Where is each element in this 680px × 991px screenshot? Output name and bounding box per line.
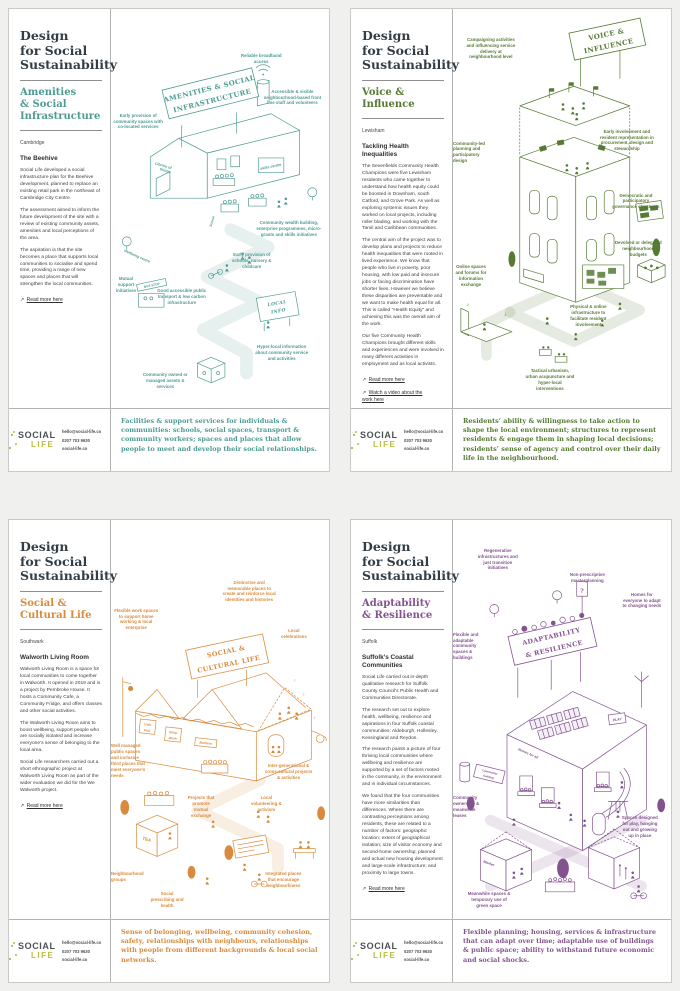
location-label: Southwark <box>20 639 102 645</box>
svg-text:♪: ♪ <box>467 303 469 308</box>
read-more-link[interactable]: ↗ Watch a video about the work here <box>362 390 432 404</box>
poster-subtitle: Amenities & Social Infrastructure <box>20 87 102 124</box>
body-paragraph: The aspiration is that the site becomes … <box>20 248 102 290</box>
illustration-canvas: ♪ ♪ VOICE & INFLUENCE <box>453 9 671 408</box>
illustration-callout: Integrated places that encourage neighbo… <box>261 871 305 888</box>
roof-sign: ADAPTABILITY & RESILIENCE <box>506 611 596 665</box>
roof-sign: AMENITIES & SOCIAL INFRASTRUCTURE <box>160 68 259 120</box>
footer-brand: SOCIAL LIFE hello@social-life.co 0207 70… <box>351 409 453 471</box>
illustration-callout: Spaces designed for play, hanging out an… <box>621 815 659 838</box>
poster-voice-influence: Design for Social Sustainability Voice &… <box>350 8 672 472</box>
external-link-icon: ↗ <box>362 377 368 383</box>
poster-footer: SOCIAL LIFE hello@social-life.co 0207 70… <box>351 919 671 982</box>
location-label: Suffolk <box>362 639 444 645</box>
external-link-icon: ↗ <box>362 390 368 396</box>
project-heading: Tackling Health Inequalities <box>362 143 444 159</box>
contact-phone: 0207 703 9630 <box>62 438 101 443</box>
logo-text-life: LIFE <box>373 441 398 449</box>
links: ↗ Read more here <box>362 886 444 893</box>
body-paragraph: The Walworth Living Room aims to boost w… <box>20 721 102 756</box>
logo-text-life: LIFE <box>373 952 398 960</box>
svg-text:Cafe: Cafe <box>144 722 152 727</box>
body-paragraph: We found that the four communities have … <box>362 794 444 877</box>
social-life-logo: SOCIAL LIFE <box>18 431 56 449</box>
poster-footer: SOCIAL LIFE hello@social-life.co 0207 70… <box>351 408 671 471</box>
divider <box>20 80 102 81</box>
svg-text:Pub: Pub <box>144 728 151 733</box>
summary-statement: Flexible planning; housing, services & i… <box>453 920 671 982</box>
shop-work-sign: Shop Work <box>165 727 182 742</box>
divider <box>362 591 444 592</box>
poster-subtitle: Adaptability & Resilience <box>362 598 444 622</box>
contact-email: hello@social-life.co <box>404 429 443 434</box>
illustration-callout: Community ownership & meanwhile leases <box>453 795 483 818</box>
illustration-callout: Good accessible public transport & low c… <box>157 288 207 305</box>
location-label: Lewisham <box>362 128 444 134</box>
community-building-sign: Community building <box>473 764 505 784</box>
sidebar: Design for Social Sustainability Adaptab… <box>351 520 453 919</box>
illustration-callout: Physical & online infrastructure to faci… <box>566 304 610 327</box>
poster-subtitle: Voice & Influence <box>362 87 444 111</box>
page-title: Design for Social Sustainability <box>20 29 102 73</box>
sidebar: Design for Social Sustainability Social … <box>9 520 111 919</box>
illustration-callout: Local volunteering & activism <box>248 795 284 812</box>
poster-body: Design for Social Sustainability Social … <box>9 520 329 919</box>
project-heading: Suffolk’s Coastal Communities <box>362 654 444 670</box>
illustration-callout: Flexible and adaptable community spaces … <box>453 632 483 661</box>
body-paragraph: The research set out to explore health, … <box>362 708 444 743</box>
page-title: Design for Social Sustainability <box>362 29 444 73</box>
adaptability-illustration: ADAPTABILITY & RESILIENCE ? PLAY Homes f… <box>453 520 671 919</box>
external-link-icon: ↗ <box>20 803 26 809</box>
divider <box>362 80 444 81</box>
external-link-icon: ↗ <box>362 886 368 892</box>
social-life-logo: SOCIAL LIFE <box>18 942 56 960</box>
illustration-callout: Well managed public spaces and inclusive… <box>111 743 149 778</box>
read-more-link[interactable]: ↗ Read more here <box>362 377 432 384</box>
wellbeing-centre-label: Wellbeing centre <box>123 249 150 264</box>
logo-text-social: SOCIAL <box>18 431 56 440</box>
contact-block: hello@social-life.co 0207 703 9630 socia… <box>62 429 101 451</box>
poster-adaptability: Design for Social Sustainability Adaptab… <box>350 519 672 983</box>
body-text: Social Life developed a social infrastru… <box>20 168 102 289</box>
social-life-logo: SOCIAL LIFE <box>360 431 398 449</box>
page-title: Design for Social Sustainability <box>362 540 444 584</box>
location-label: Cambridge <box>20 140 102 146</box>
illustration-canvas: ADAPTABILITY & RESILIENCE ? PLAY Homes f… <box>453 520 671 919</box>
body-paragraph: The central aim of the project was to de… <box>362 238 444 328</box>
illustration-callout: Reliable broadband access <box>235 53 287 65</box>
illustration-callout: Meanwhile spaces & temporary use of gree… <box>466 891 512 908</box>
body-text: The Sevenfields Community Health Champio… <box>362 164 444 369</box>
project-heading: Walworth Living Room <box>20 654 102 662</box>
contact-website: social-life.co <box>404 446 443 451</box>
project-heading: The Beehive <box>20 155 102 163</box>
footer-brand: SOCIAL LIFE hello@social-life.co 0207 70… <box>9 409 111 471</box>
poster-amenities: Design for Social Sustainability Ameniti… <box>8 8 330 472</box>
illustration-callout: Local celebrations <box>279 628 309 640</box>
divider <box>362 629 444 630</box>
contact-email: hello@social-life.co <box>62 429 101 434</box>
contact-website: social-life.co <box>62 957 101 962</box>
divider <box>20 591 102 592</box>
logo-text-life: LIFE <box>31 952 56 960</box>
roof-sign: SOCIAL & CULTURAL LIFE <box>186 634 269 679</box>
illustration-callout: Distinctive and memorable places to crea… <box>222 580 276 603</box>
logo-text-social: SOCIAL <box>360 431 398 440</box>
logo-dots <box>353 434 355 436</box>
logo-dots <box>11 434 13 436</box>
illustration-canvas: AMENITIES & SOCIAL INFRASTRUCTURE Librar… <box>111 9 329 408</box>
external-link-icon: ↗ <box>20 297 26 303</box>
links: ↗ Read more here↗ Watch a video about th… <box>362 377 444 404</box>
contact-block: hello@social-life.co 0207 703 9630 socia… <box>62 940 101 962</box>
logo-text-social: SOCIAL <box>18 942 56 951</box>
logo-text-social: SOCIAL <box>360 942 398 951</box>
poster-body: Design for Social Sustainability Voice &… <box>351 9 671 408</box>
body-paragraph: Walworth Living Room is a space for loca… <box>20 667 102 716</box>
contact-website: social-life.co <box>404 957 443 962</box>
illustration-callout: Campaigning activities and influencing s… <box>464 37 518 60</box>
page-title: Design for Social Sustainability <box>20 540 102 584</box>
body-paragraph: The assessment aimed to inform the futur… <box>20 208 102 243</box>
body-text: Walworth Living Room is a space for loca… <box>20 667 102 795</box>
illustration-callout: Online spaces and forums for information… <box>453 264 489 287</box>
illustration-callout: Hyper-local information about community … <box>253 344 311 361</box>
svg-text:Work: Work <box>168 736 177 741</box>
illustration-callout: Early involvement and resident represent… <box>597 129 657 152</box>
poster-subtitle: Social & Cultural Life <box>20 598 102 622</box>
footer-brand: SOCIAL LIFE hello@social-life.co 0207 70… <box>9 920 111 982</box>
illustration-callout: Community wealth building, enterprise pr… <box>255 220 323 237</box>
school-label: School <box>209 215 216 227</box>
illustration-callout: Inter-generational & cross-cultural proj… <box>264 763 314 780</box>
contact-phone: 0207 703 9630 <box>62 949 101 954</box>
sidebar: Design for Social Sustainability Voice &… <box>351 9 453 408</box>
question-sign: ? <box>580 587 584 594</box>
contact-website: social-life.co <box>62 446 101 451</box>
social-cultural-illustration: ♪ ♪ ♪ <box>111 520 329 919</box>
body-text: Social Life carried out in-depth qualita… <box>362 675 444 878</box>
illustration-callout: Regenerative infrastructures and just tr… <box>475 548 521 571</box>
illustration-callout: Flexible work spaces to support home wor… <box>113 608 159 631</box>
contact-email: hello@social-life.co <box>62 940 101 945</box>
svg-text:♪: ♪ <box>504 313 506 318</box>
cafe-pub-sign: Cafe Pub <box>139 719 156 734</box>
read-more-link[interactable]: ↗ Read more here <box>20 803 90 810</box>
links: ↗ Read more here <box>20 803 102 810</box>
divider <box>362 118 444 119</box>
illustration-callout: Devolved or delegated neighbourhood budg… <box>614 240 662 257</box>
body-paragraph: Our five Community Health Champions brou… <box>362 334 444 369</box>
contact-block: hello@social-life.co 0207 703 9630 socia… <box>404 429 443 451</box>
illustration-callout: Early provision of schools, nursery & ch… <box>229 252 275 269</box>
illustration-callout: Non-prescriptive masterplanning <box>566 572 608 584</box>
illustration-callout: Projects that promote mutual exchange <box>185 795 217 818</box>
illustration-callout: Democratic and participatory governance … <box>610 193 662 210</box>
logo-dots <box>11 945 13 947</box>
contact-block: hello@social-life.co 0207 703 9630 socia… <box>404 940 443 962</box>
illustration-callout: Homes for everyone to adapt to changing … <box>621 592 663 609</box>
illustration-callout: Early provision of community spaces with… <box>113 113 163 130</box>
illustration-callout: Tactical urbanism, urban acupuncture and… <box>525 368 575 391</box>
illustration-canvas: ♪ ♪ ♪ <box>111 520 329 919</box>
svg-text:Shop: Shop <box>169 730 178 735</box>
contact-phone: 0207 703 9630 <box>404 438 443 443</box>
read-more-link[interactable]: ↗ Read more here <box>20 297 90 304</box>
illustration-callout: Social prescribing and health <box>148 891 186 908</box>
svg-text:♪: ♪ <box>294 678 296 683</box>
illustration-callout: Mutual support initiatives <box>111 276 141 293</box>
footer-brand: SOCIAL LIFE hello@social-life.co 0207 70… <box>351 920 453 982</box>
summary-statement: Residents’ ability & willingness to take… <box>453 409 671 471</box>
illustration-callout: Community owned or managed assets & serv… <box>139 372 191 389</box>
roof-sign: VOICE & INFLUENCE <box>569 18 646 60</box>
body-paragraph: The Sevenfields Community Health Champio… <box>362 164 444 234</box>
body-paragraph: Social Life carried out in-depth qualita… <box>362 675 444 703</box>
divider <box>20 629 102 630</box>
logo-text-life: LIFE <box>31 441 56 449</box>
contact-phone: 0207 703 9630 <box>404 949 443 954</box>
links: ↗ Read more here <box>20 297 102 304</box>
poster-body: Design for Social Sustainability Adaptab… <box>351 520 671 919</box>
body-paragraph: Social Life developed a social infrastru… <box>20 168 102 203</box>
logo-dots <box>353 945 355 947</box>
poster-footer: SOCIAL LIFE hello@social-life.co 0207 70… <box>9 919 329 982</box>
social-life-logo: SOCIAL LIFE <box>360 942 398 960</box>
play-sign: PLAY <box>608 713 626 725</box>
illustration-callout: Accessible & visible neighbourhood-based… <box>261 89 323 106</box>
read-more-link[interactable]: ↗ Read more here <box>362 886 432 893</box>
poster-social-cultural: Design for Social Sustainability Social … <box>8 519 330 983</box>
illustration-callout: Neighbourhood groups <box>111 871 137 883</box>
summary-statement: Sense of belonging, wellbeing, community… <box>111 920 329 982</box>
svg-text:♪: ♪ <box>313 715 315 720</box>
svg-text:♪: ♪ <box>302 691 304 696</box>
contact-email: hello@social-life.co <box>404 940 443 945</box>
poster-body: Design for Social Sustainability Ameniti… <box>9 9 329 408</box>
body-paragraph: Social Life researchers carried out a sh… <box>20 760 102 795</box>
sidebar: Design for Social Sustainability Ameniti… <box>9 9 111 408</box>
summary-statement: Facilities & support services for indivi… <box>111 409 329 471</box>
poster-footer: SOCIAL LIFE hello@social-life.co 0207 70… <box>9 408 329 471</box>
divider <box>20 130 102 131</box>
poster-grid: Design for Social Sustainability Ameniti… <box>0 0 680 991</box>
illustration-callout: Community-led planning and participatory… <box>453 141 487 164</box>
body-paragraph: The research paints a picture of four th… <box>362 747 444 789</box>
